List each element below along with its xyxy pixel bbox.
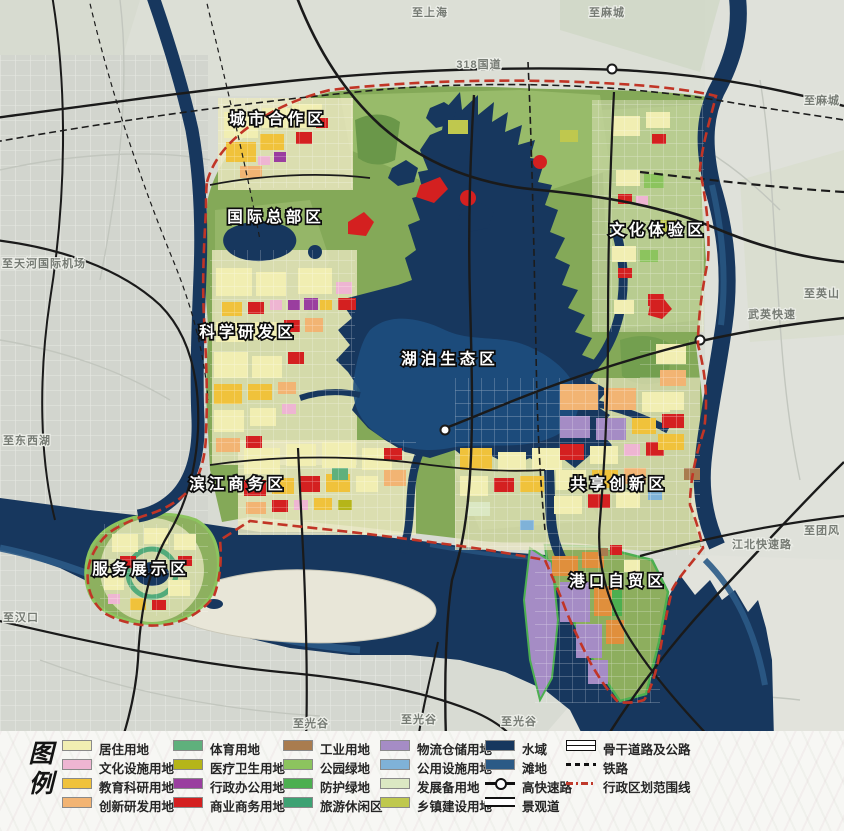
legend-label: 商业商务用地 (210, 796, 285, 815)
legend-swatch (62, 740, 92, 751)
legend-swatch (173, 740, 203, 751)
legend-swatch (283, 778, 313, 789)
legend-label: 体育用地 (210, 739, 260, 758)
legend: 图 例 居住用地文化设施用地教育科研用地创新研发用地体育用地医疗卫生用地行政办公… (0, 731, 844, 831)
rail-symbol (566, 763, 596, 766)
district-label: 港口自贸区 (569, 571, 667, 590)
legend-label: 文化设施用地 (99, 758, 174, 777)
admin-symbol (566, 782, 596, 785)
planning-map-screenshot: 城市合作区国际总部区科学研发区湖泊生态区文化体验区共享创新区滨江商务区服务展示区… (0, 0, 844, 831)
legend-swatch (485, 740, 515, 751)
expressway-symbol (485, 778, 515, 789)
legend-label: 景观道 (522, 796, 560, 815)
place-label: 至上海 (412, 5, 448, 19)
district-label: 湖泊生态区 (401, 349, 499, 368)
legend-label: 公用设施用地 (417, 758, 492, 777)
legend-label: 骨干道路及公路 (603, 739, 691, 758)
place-label: 至团风 (804, 523, 840, 537)
district-label: 服务展示区 (92, 559, 190, 578)
district-label: 滨江商务区 (189, 474, 287, 493)
district-label: 国际总部区 (227, 207, 325, 226)
trunk-symbol (566, 740, 596, 751)
legend-swatch (173, 797, 203, 808)
legend-swatch (62, 759, 92, 770)
place-label: 至光谷 (293, 716, 329, 730)
legend-swatch (380, 778, 410, 789)
place-label: 江北快速路 (732, 537, 792, 551)
legend-label: 发展备用地 (417, 777, 480, 796)
place-label: 至光谷 (501, 714, 537, 728)
legend-swatch (283, 797, 313, 808)
legend-swatch (380, 797, 410, 808)
place-label: 至东西湖 (3, 433, 51, 447)
legend-title-char: 图 (24, 739, 58, 769)
place-label: 至天河国际机场 (2, 256, 86, 270)
district-label: 科学研发区 (199, 322, 297, 341)
legend-label: 工业用地 (320, 739, 370, 758)
legend-swatch (173, 759, 203, 770)
legend-label: 医疗卫生用地 (210, 758, 285, 777)
legend-label: 居住用地 (99, 739, 149, 758)
legend-swatch (62, 797, 92, 808)
place-label: 至麻城 (589, 5, 625, 19)
legend-swatch (283, 740, 313, 751)
place-label: 武英快速 (748, 307, 796, 321)
legend-label: 乡镇建设用地 (417, 796, 492, 815)
legend-label: 高快速路 (522, 777, 572, 796)
scenic-symbol (485, 797, 515, 807)
legend-label: 物流仓储用地 (417, 739, 492, 758)
legend-label: 公园绿地 (320, 758, 370, 777)
place-label: 至英山 (804, 286, 840, 300)
legend-label: 行政办公用地 (210, 777, 285, 796)
legend-label: 铁路 (603, 758, 628, 777)
legend-label: 防护绿地 (320, 777, 370, 796)
map-canvas: 城市合作区国际总部区科学研发区湖泊生态区文化体验区共享创新区滨江商务区服务展示区… (0, 0, 844, 740)
legend-swatch (173, 778, 203, 789)
place-label: 至汉口 (3, 610, 39, 624)
district-label: 文化体验区 (609, 220, 707, 239)
legend-swatch (283, 759, 313, 770)
legend-label: 水域 (522, 739, 547, 758)
legend-label: 教育科研用地 (99, 777, 174, 796)
place-label: 至麻城 (804, 93, 840, 107)
legend-label: 旅游休闲区 (320, 796, 383, 815)
legend-label: 行政区划范围线 (603, 777, 691, 796)
legend-title: 图 例 (24, 739, 58, 799)
legend-swatch (380, 740, 410, 751)
legend-swatch (62, 778, 92, 789)
legend-swatch (380, 759, 410, 770)
legend-label: 创新研发用地 (99, 796, 174, 815)
legend-swatch (485, 759, 515, 770)
place-label: 至光谷 (401, 712, 437, 726)
place-label: 318国道 (456, 57, 501, 71)
legend-title-char: 例 (24, 769, 58, 799)
district-label: 城市合作区 (229, 109, 327, 128)
district-label: 共享创新区 (570, 474, 668, 493)
legend-label: 滩地 (522, 758, 547, 777)
